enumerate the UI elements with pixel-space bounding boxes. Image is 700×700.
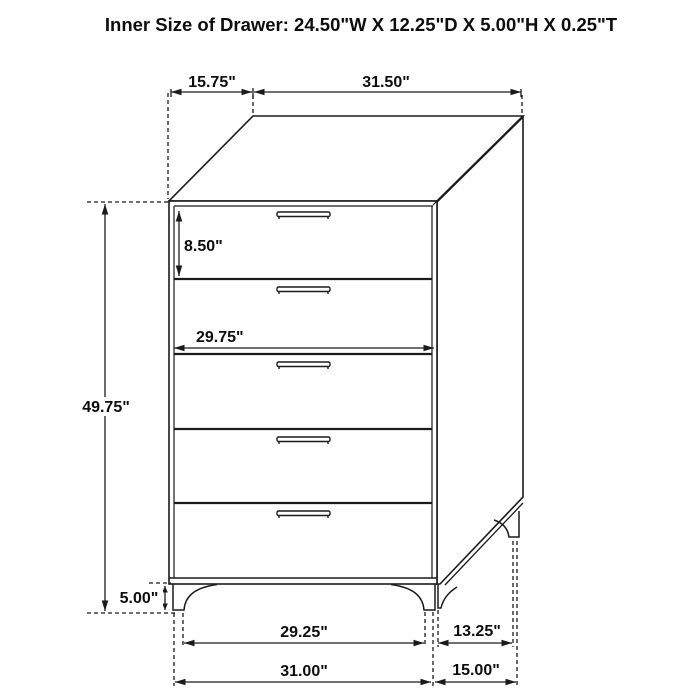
diagram-canvas: Inner Size of Drawer: 24.50"W X 12.25"D … [0, 0, 700, 700]
front-right-leg [391, 584, 435, 610]
page-title: Inner Size of Drawer: 24.50"W X 12.25"D … [105, 14, 618, 35]
top-depth-label: 15.75" [188, 74, 236, 91]
base-span-side-label: 13.25" [453, 623, 501, 640]
drawer-height-label: 8.50" [184, 238, 223, 255]
overall-height-label: 49.75" [82, 399, 130, 416]
base-depth-label: 15.00" [452, 662, 500, 679]
chest-body [169, 116, 523, 585]
front-left-leg [173, 584, 217, 610]
top-width-label: 31.50" [362, 74, 410, 91]
drawer-width-label: 29.75" [196, 329, 244, 346]
side-front-leg [438, 584, 457, 608]
base-width-label: 31.00" [280, 663, 328, 680]
base-span-front-label: 29.25" [280, 624, 328, 641]
chest-front-face [169, 201, 437, 584]
leg-height-label: 5.00" [120, 590, 159, 607]
chest-dimension-diagram: Inner Size of Drawer: 24.50"W X 12.25"D … [0, 0, 700, 700]
